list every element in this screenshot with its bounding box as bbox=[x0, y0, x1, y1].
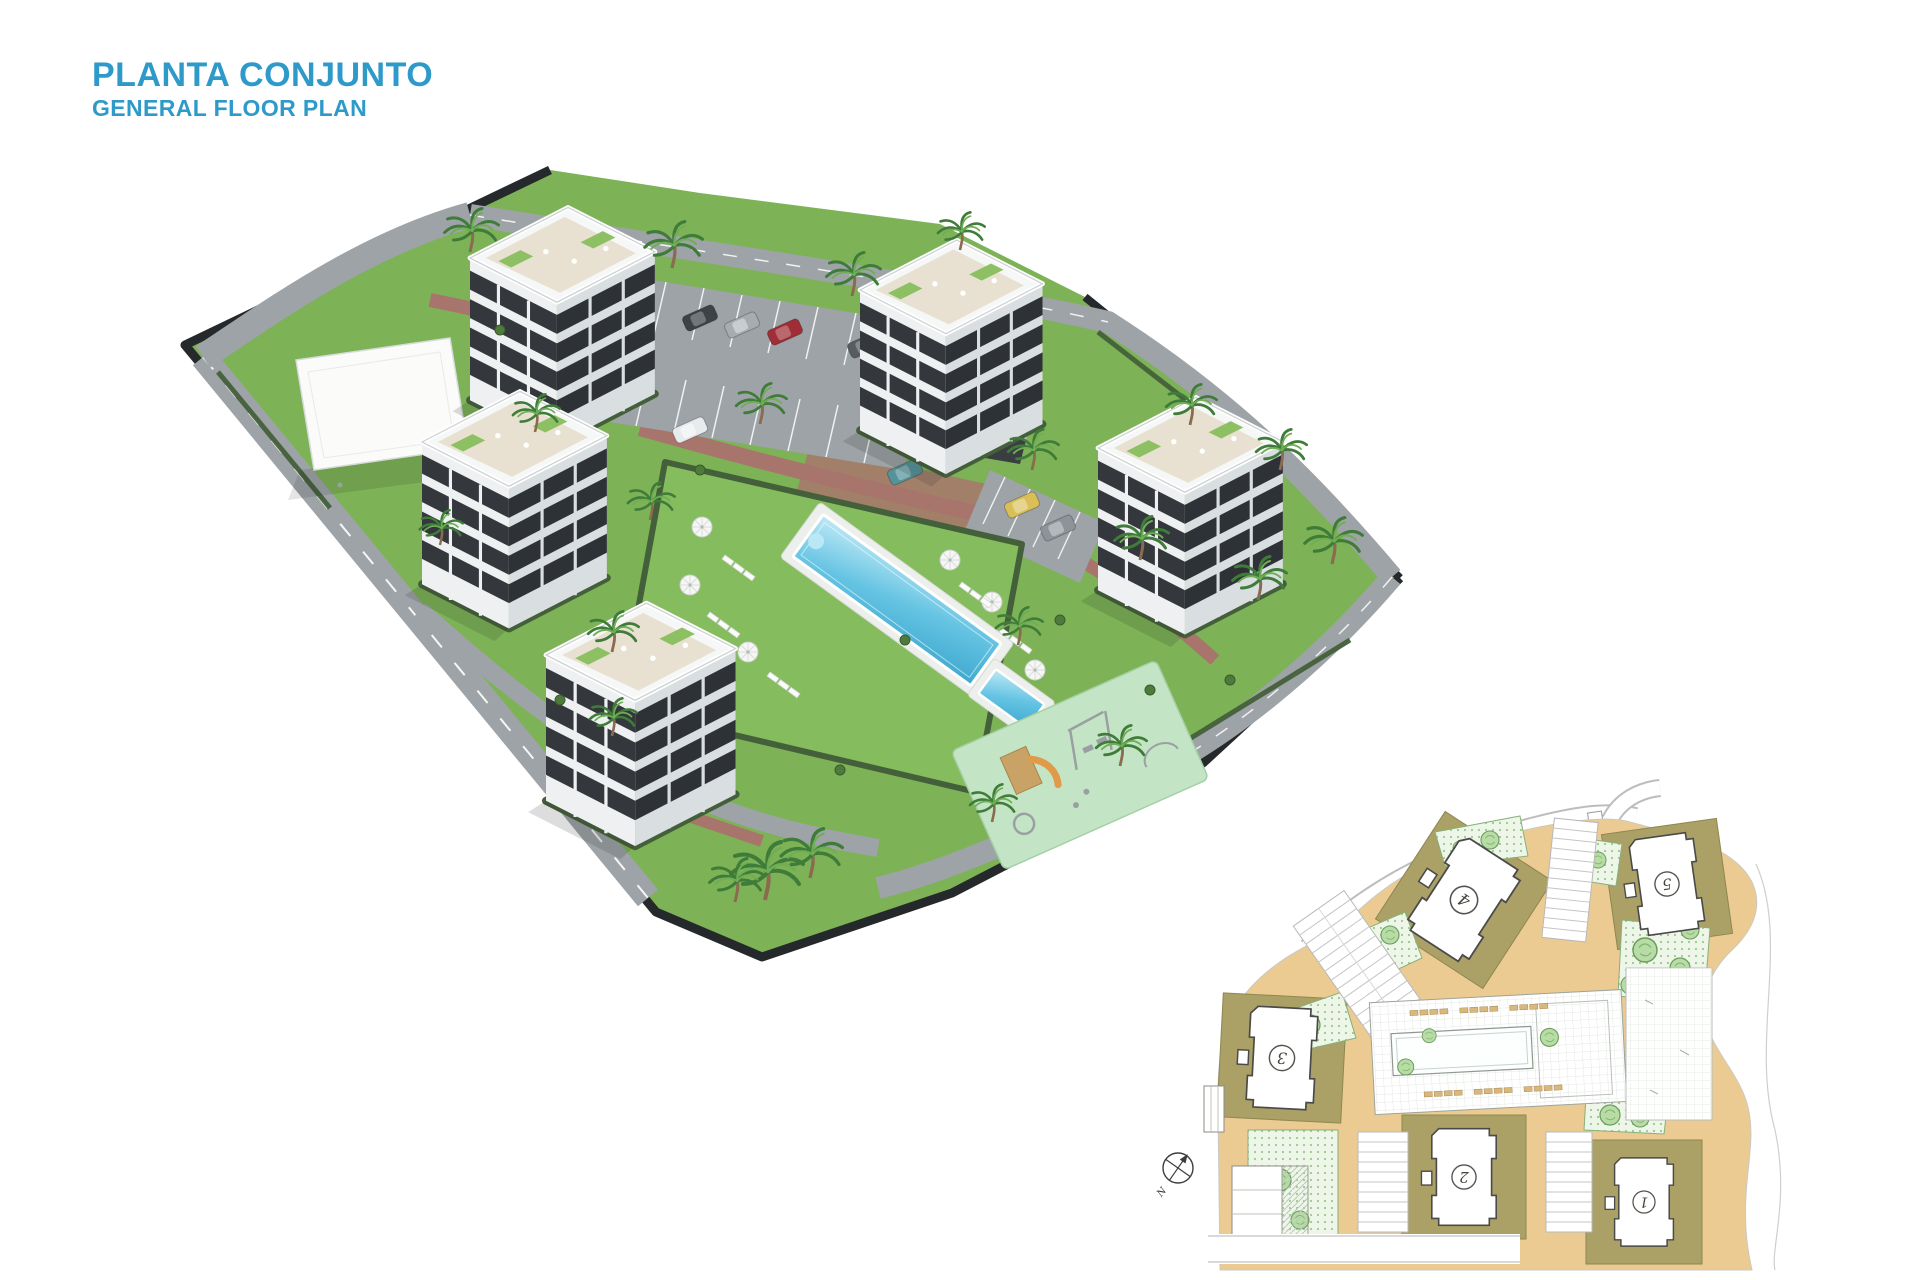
building-number-1: 1 bbox=[1640, 1193, 1649, 1209]
umbrella-icon bbox=[940, 550, 960, 570]
umbrella-icon bbox=[738, 642, 758, 662]
plan-boundary-line bbox=[1756, 864, 1781, 1270]
site-plan-inset: 4 5 3 bbox=[1154, 788, 1780, 1270]
umbrella-icon bbox=[692, 517, 712, 537]
brochure-page: PLANTA CONJUNTO GENERAL FLOOR PLAN bbox=[0, 0, 1920, 1280]
north-label: N bbox=[1154, 1185, 1169, 1200]
umbrella-icon bbox=[1025, 660, 1045, 680]
building-number-3: 3 bbox=[1277, 1048, 1288, 1066]
plan-bottom-street bbox=[1208, 1234, 1520, 1264]
plan-pool-area bbox=[1369, 990, 1627, 1115]
plan-terrace-east bbox=[1626, 968, 1712, 1120]
main-render bbox=[185, 170, 1400, 957]
site-illustration: 4 5 3 bbox=[0, 0, 1920, 1280]
umbrella-icon bbox=[680, 575, 700, 595]
plan-utility-box bbox=[1204, 1086, 1224, 1132]
plan-neighbor-building bbox=[1232, 1166, 1308, 1238]
building-number-2: 2 bbox=[1459, 1168, 1470, 1186]
north-compass: N bbox=[1154, 1145, 1200, 1200]
